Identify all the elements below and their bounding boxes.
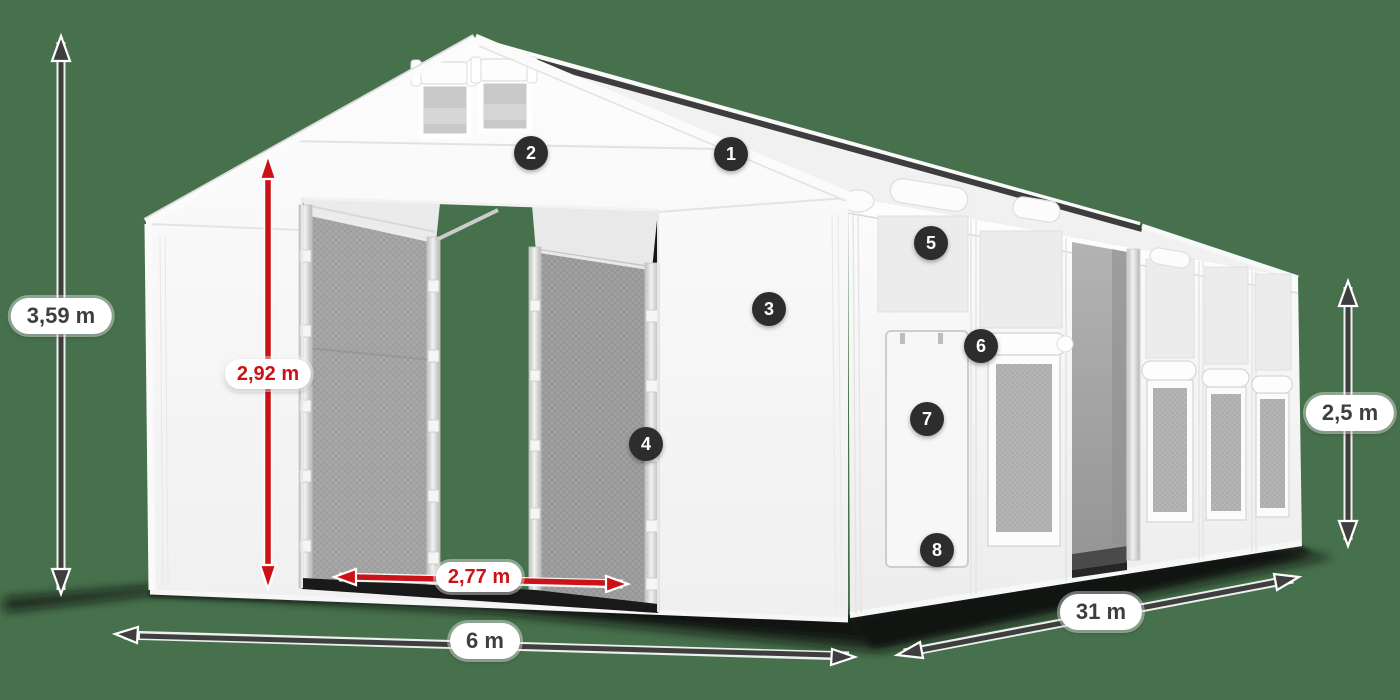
- front-opening: [299, 198, 659, 613]
- label-tent-length: 31 m: [1060, 594, 1142, 630]
- partition-panel-1: [306, 213, 434, 590]
- callout-7: 7: [910, 402, 944, 436]
- tent-illustration: [0, 0, 1400, 700]
- partition-panel-2: [536, 251, 652, 606]
- gable-vent-right: [471, 57, 537, 131]
- callout-4: 4: [629, 427, 663, 461]
- label-side-height: 2,5 m: [1306, 395, 1394, 431]
- side-door-pole: [1127, 249, 1140, 560]
- side-windows-far: [1142, 361, 1292, 522]
- side-wall: [842, 177, 1302, 618]
- through-view-gap: [436, 203, 536, 592]
- callout-8: 8: [920, 533, 954, 567]
- callout-6: 6: [964, 329, 998, 363]
- callout-5: 5: [914, 226, 948, 260]
- label-tent-width: 6 m: [450, 623, 520, 659]
- callout-2: 2: [514, 136, 548, 170]
- tent-product-image: 3,59 m 2,92 m 2,77 m 6 m 31 m 2,5 m 1 2 …: [0, 0, 1400, 700]
- callout-1: 1: [714, 137, 748, 171]
- side-door-open: [1066, 238, 1140, 581]
- label-clear-height: 2,92 m: [225, 359, 311, 389]
- side-door-panel: [886, 331, 968, 567]
- callout-3: 3: [752, 292, 786, 326]
- left-corner-edge: [148, 224, 152, 590]
- side-window-near: [977, 333, 1073, 546]
- label-entrance-width: 2,77 m: [436, 562, 522, 592]
- label-total-height: 3,59 m: [11, 298, 112, 334]
